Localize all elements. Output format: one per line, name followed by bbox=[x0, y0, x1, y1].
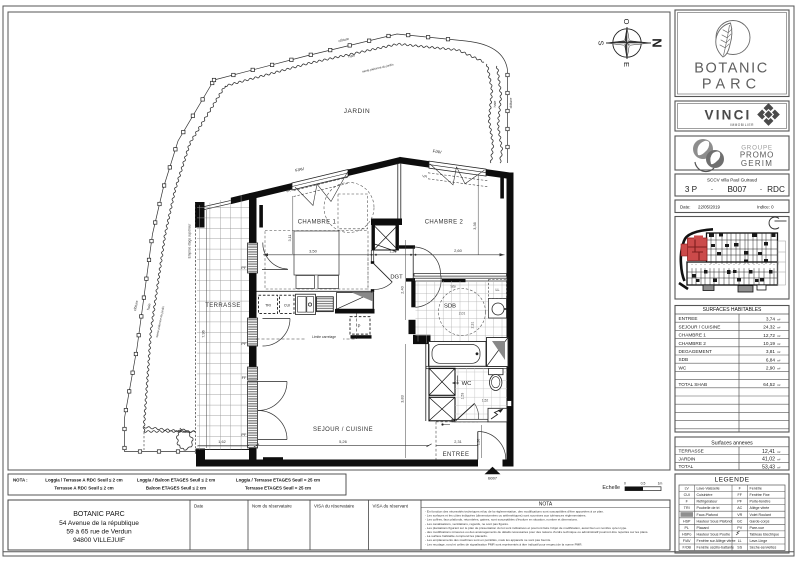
svg-text:1,62: 1,62 bbox=[218, 440, 225, 444]
svg-text:FF: FF bbox=[242, 375, 247, 380]
svg-text:Allège vitrée: Allège vitrée bbox=[750, 506, 770, 510]
svg-text:12,41: 12,41 bbox=[762, 449, 775, 455]
svg-text:- Les reculage, rond et celles: - Les reculage, rond et celles de signal… bbox=[425, 542, 582, 546]
svg-text:53,43: 53,43 bbox=[762, 464, 775, 470]
svg-text:Echelle: Echelle bbox=[602, 485, 620, 491]
svg-text:0,5: 0,5 bbox=[641, 482, 646, 486]
svg-text:Faux-Plafond: Faux-Plafond bbox=[697, 513, 718, 517]
svg-text:Volet Roulant: Volet Roulant bbox=[750, 513, 771, 517]
svg-text:Cuisinière: Cuisinière bbox=[697, 493, 713, 497]
svg-text:Pare-vue: Pare-vue bbox=[750, 526, 765, 530]
svg-text:Porte-fenêtre: Porte-fenêtre bbox=[750, 500, 771, 504]
svg-text:GERIM: GERIM bbox=[741, 159, 773, 168]
svg-text:BOTANIC: BOTANIC bbox=[694, 61, 769, 77]
svg-text:6,84: 6,84 bbox=[766, 357, 776, 362]
svg-text:SS: SS bbox=[450, 284, 456, 289]
svg-text:HSPo: HSPo bbox=[682, 533, 691, 537]
svg-text:Sèche-serviettes: Sèche-serviettes bbox=[750, 546, 777, 550]
svg-text:Fenêtre sur Allège vitrée: Fenêtre sur Allège vitrée bbox=[697, 539, 736, 543]
svg-text:Lave-Linge: Lave-Linge bbox=[750, 539, 768, 543]
svg-text:Loggia / Balcon ETAGES Seuil ≤: Loggia / Balcon ETAGES Seuil ≤ 2 cm bbox=[137, 478, 215, 483]
svg-text:PL: PL bbox=[684, 526, 688, 530]
svg-text:haie: haie bbox=[493, 101, 497, 108]
svg-text:22/05/2019: 22/05/2019 bbox=[698, 204, 721, 209]
svg-text:F/AV: F/AV bbox=[683, 539, 691, 543]
svg-text:PV: PV bbox=[737, 526, 742, 530]
svg-text:m²: m² bbox=[777, 342, 780, 346]
svg-text:LV: LV bbox=[685, 487, 690, 491]
svg-text:SDB: SDB bbox=[444, 304, 456, 310]
svg-text:Loggia / Terrasse ETAGES Seuil: Loggia / Terrasse ETAGES Seuil = 25 cm bbox=[236, 478, 320, 483]
svg-text:m²: m² bbox=[777, 317, 780, 321]
svg-text:PF: PF bbox=[737, 500, 742, 504]
svg-text:0: 0 bbox=[624, 482, 626, 486]
svg-text:PARC: PARC bbox=[702, 77, 761, 93]
svg-text:Réfrigérateur: Réfrigérateur bbox=[697, 500, 719, 504]
svg-text:2,01: 2,01 bbox=[459, 312, 466, 316]
svg-text:SURFACES HABITABLES: SURFACES HABITABLES bbox=[703, 307, 762, 313]
svg-text:3,74: 3,74 bbox=[766, 316, 776, 321]
svg-text:JARDIN: JARDIN bbox=[679, 456, 696, 461]
svg-text:Surfaces annexes: Surfaces annexes bbox=[711, 440, 753, 446]
svg-text:94800 VILLEJUIF: 94800 VILLEJUIF bbox=[73, 537, 125, 544]
svg-text:Lave-Vaisselle: Lave-Vaisselle bbox=[697, 487, 720, 491]
svg-text:3,81: 3,81 bbox=[766, 349, 776, 354]
svg-text:DGT: DGT bbox=[390, 275, 403, 281]
svg-text:VISA du réservataire: VISA du réservataire bbox=[314, 504, 355, 509]
svg-text:RDC: RDC bbox=[767, 185, 785, 194]
svg-text:CHAMBRE 2: CHAMBRE 2 bbox=[425, 220, 464, 226]
svg-text:NOTA :: NOTA : bbox=[13, 478, 28, 483]
svg-text:Hauteur Sous Poutre: Hauteur Sous Poutre bbox=[697, 533, 731, 537]
svg-text:2,90: 2,90 bbox=[766, 366, 776, 371]
svg-text:TERRASSE: TERRASSE bbox=[205, 303, 241, 309]
svg-text:SDB: SDB bbox=[679, 357, 689, 362]
svg-text:Terrasse A RDC Seuil ≤ 2 cm: Terrasse A RDC Seuil ≤ 2 cm bbox=[54, 486, 113, 491]
svg-text:24,32: 24,32 bbox=[763, 325, 775, 330]
svg-text:HSP: HSP bbox=[683, 519, 691, 523]
svg-text:3 P: 3 P bbox=[685, 185, 698, 194]
svg-text:PF: PF bbox=[241, 432, 247, 437]
svg-text:1,53: 1,53 bbox=[461, 393, 465, 400]
svg-text:SCCV villa Paul Guiraud: SCCV villa Paul Guiraud bbox=[707, 178, 757, 183]
svg-text:Placard: Placard bbox=[697, 526, 709, 530]
svg-text:AC: AC bbox=[737, 506, 742, 510]
svg-text:DEGAGEMENT: DEGAGEMENT bbox=[679, 349, 712, 354]
svg-text:1,26: 1,26 bbox=[390, 249, 397, 253]
svg-text:GC: GC bbox=[737, 519, 743, 523]
svg-text:2,60: 2,60 bbox=[454, 248, 463, 253]
svg-text:Nom du réservataire: Nom du réservataire bbox=[252, 504, 292, 509]
svg-text:12,72: 12,72 bbox=[763, 333, 775, 338]
svg-text:P: P bbox=[358, 324, 361, 329]
svg-text:54 Avenue de la république: 54 Avenue de la république bbox=[59, 520, 139, 527]
svg-text:Loggia / Terrasse A RDC Seuil: Loggia / Terrasse A RDC Seuil ≤ 2 cm bbox=[45, 478, 122, 483]
svg-text:1,52: 1,52 bbox=[482, 399, 489, 403]
svg-text:m²: m² bbox=[777, 458, 780, 462]
svg-text:Fenêtre oscillo-battante: Fenêtre oscillo-battante bbox=[697, 546, 735, 550]
svg-text:Tableau Electrique: Tableau Electrique bbox=[750, 533, 780, 537]
svg-text:Date:: Date: bbox=[680, 204, 691, 209]
svg-text:2,40: 2,40 bbox=[401, 286, 405, 293]
svg-text:CHAMBRE 2: CHAMBRE 2 bbox=[679, 341, 707, 346]
svg-text:ENTREE: ENTREE bbox=[443, 452, 470, 458]
svg-text:m²: m² bbox=[777, 358, 780, 362]
svg-text:-: - bbox=[711, 187, 713, 193]
svg-text:Date: Date bbox=[194, 504, 204, 509]
svg-text:Emprise étage supérieur: Emprise étage supérieur bbox=[188, 223, 192, 259]
svg-text:B007: B007 bbox=[727, 185, 747, 194]
svg-text:O: O bbox=[622, 19, 631, 25]
svg-text:m²: m² bbox=[777, 465, 780, 469]
svg-text:F/OB: F/OB bbox=[683, 546, 692, 550]
svg-text:2,31: 2,31 bbox=[471, 322, 475, 329]
svg-text:NOTA: NOTA bbox=[539, 502, 553, 508]
svg-text:TRI: TRI bbox=[684, 506, 690, 510]
svg-text:PF: PF bbox=[241, 265, 247, 270]
svg-text:S: S bbox=[597, 40, 606, 45]
svg-text:TOTAL: TOTAL bbox=[679, 464, 694, 469]
svg-text:VR: VR bbox=[737, 513, 742, 517]
svg-text:Indice: 0: Indice: 0 bbox=[757, 204, 774, 209]
svg-text:3,11: 3,11 bbox=[288, 235, 292, 242]
svg-text:Hauteur Sous Plafond: Hauteur Sous Plafond bbox=[697, 519, 732, 523]
svg-text:1m: 1m bbox=[658, 482, 663, 486]
svg-text:BOTANIC PARC: BOTANIC PARC bbox=[73, 511, 124, 518]
svg-text:5,26: 5,26 bbox=[339, 439, 348, 444]
svg-text:PF: PF bbox=[241, 341, 247, 346]
svg-text:TRI: TRI bbox=[265, 304, 271, 308]
svg-text:SEJOUR / CUISINE: SEJOUR / CUISINE bbox=[313, 427, 373, 433]
svg-text:LEGENDE: LEGENDE bbox=[714, 477, 749, 484]
svg-text:TOTAL SHAB: TOTAL SHAB bbox=[679, 382, 708, 387]
svg-text:10,19: 10,19 bbox=[763, 341, 775, 346]
svg-text:m²: m² bbox=[777, 350, 780, 354]
svg-text:-: - bbox=[760, 187, 762, 193]
svg-text:CHAMBRE 1: CHAMBRE 1 bbox=[679, 333, 707, 338]
svg-text:Limite carrelage: Limite carrelage bbox=[312, 335, 336, 339]
svg-text:2,31: 2,31 bbox=[454, 440, 461, 444]
svg-text:E: E bbox=[622, 62, 631, 67]
svg-text:Terrasse ETAGES Seuil = 25 cm: Terrasse ETAGES Seuil = 25 cm bbox=[245, 486, 311, 491]
svg-text:3,83: 3,83 bbox=[401, 395, 405, 402]
svg-text:Fenêtre Fixe: Fenêtre Fixe bbox=[750, 493, 770, 497]
svg-text:m²: m² bbox=[777, 326, 780, 330]
svg-text:JARDIN: JARDIN bbox=[344, 108, 370, 115]
svg-text:m²: m² bbox=[777, 383, 780, 387]
svg-text:VINCI: VINCI bbox=[704, 108, 751, 123]
svg-text:3,50: 3,50 bbox=[309, 248, 318, 253]
svg-text:CUI: CUI bbox=[284, 304, 290, 308]
svg-text:WC: WC bbox=[679, 365, 687, 370]
svg-text:1,36: 1,36 bbox=[477, 439, 481, 446]
svg-text:CUI: CUI bbox=[684, 493, 690, 497]
svg-text:59 à 65 rue de Verdun: 59 à 65 rue de Verdun bbox=[66, 529, 132, 536]
svg-text:m²: m² bbox=[777, 450, 780, 454]
svg-text:Poubelle de tri: Poubelle de tri bbox=[697, 506, 720, 510]
svg-text:clôture: clôture bbox=[509, 98, 513, 109]
svg-text:SEJOUR / CUISINE: SEJOUR / CUISINE bbox=[679, 324, 721, 329]
svg-text:Garde-corps: Garde-corps bbox=[750, 519, 770, 523]
svg-text:IMMOBILIER: IMMOBILIER bbox=[730, 123, 754, 127]
svg-text:WC: WC bbox=[462, 381, 472, 387]
svg-text:N: N bbox=[650, 38, 665, 47]
svg-text:64,52: 64,52 bbox=[763, 382, 775, 387]
svg-text:41,02: 41,02 bbox=[762, 457, 775, 463]
svg-text:ENTREE: ENTREE bbox=[679, 316, 698, 321]
svg-text:VISA du réservant: VISA du réservant bbox=[373, 504, 409, 509]
svg-text:m²: m² bbox=[777, 367, 780, 371]
svg-text:LL: LL bbox=[738, 539, 742, 543]
svg-text:3,36: 3,36 bbox=[473, 222, 477, 229]
svg-text:TERRASSE: TERRASSE bbox=[679, 449, 704, 454]
svg-text:m²: m² bbox=[777, 334, 780, 338]
svg-text:Balcon ETAGES Seuil ≤ 2 cm: Balcon ETAGES Seuil ≤ 2 cm bbox=[146, 486, 206, 491]
svg-text:7,96: 7,96 bbox=[202, 330, 206, 337]
svg-text:B007: B007 bbox=[488, 477, 497, 481]
svg-text:Fenêtre: Fenêtre bbox=[750, 487, 762, 491]
svg-text:LL: LL bbox=[496, 288, 500, 292]
svg-text:SS: SS bbox=[737, 546, 742, 550]
